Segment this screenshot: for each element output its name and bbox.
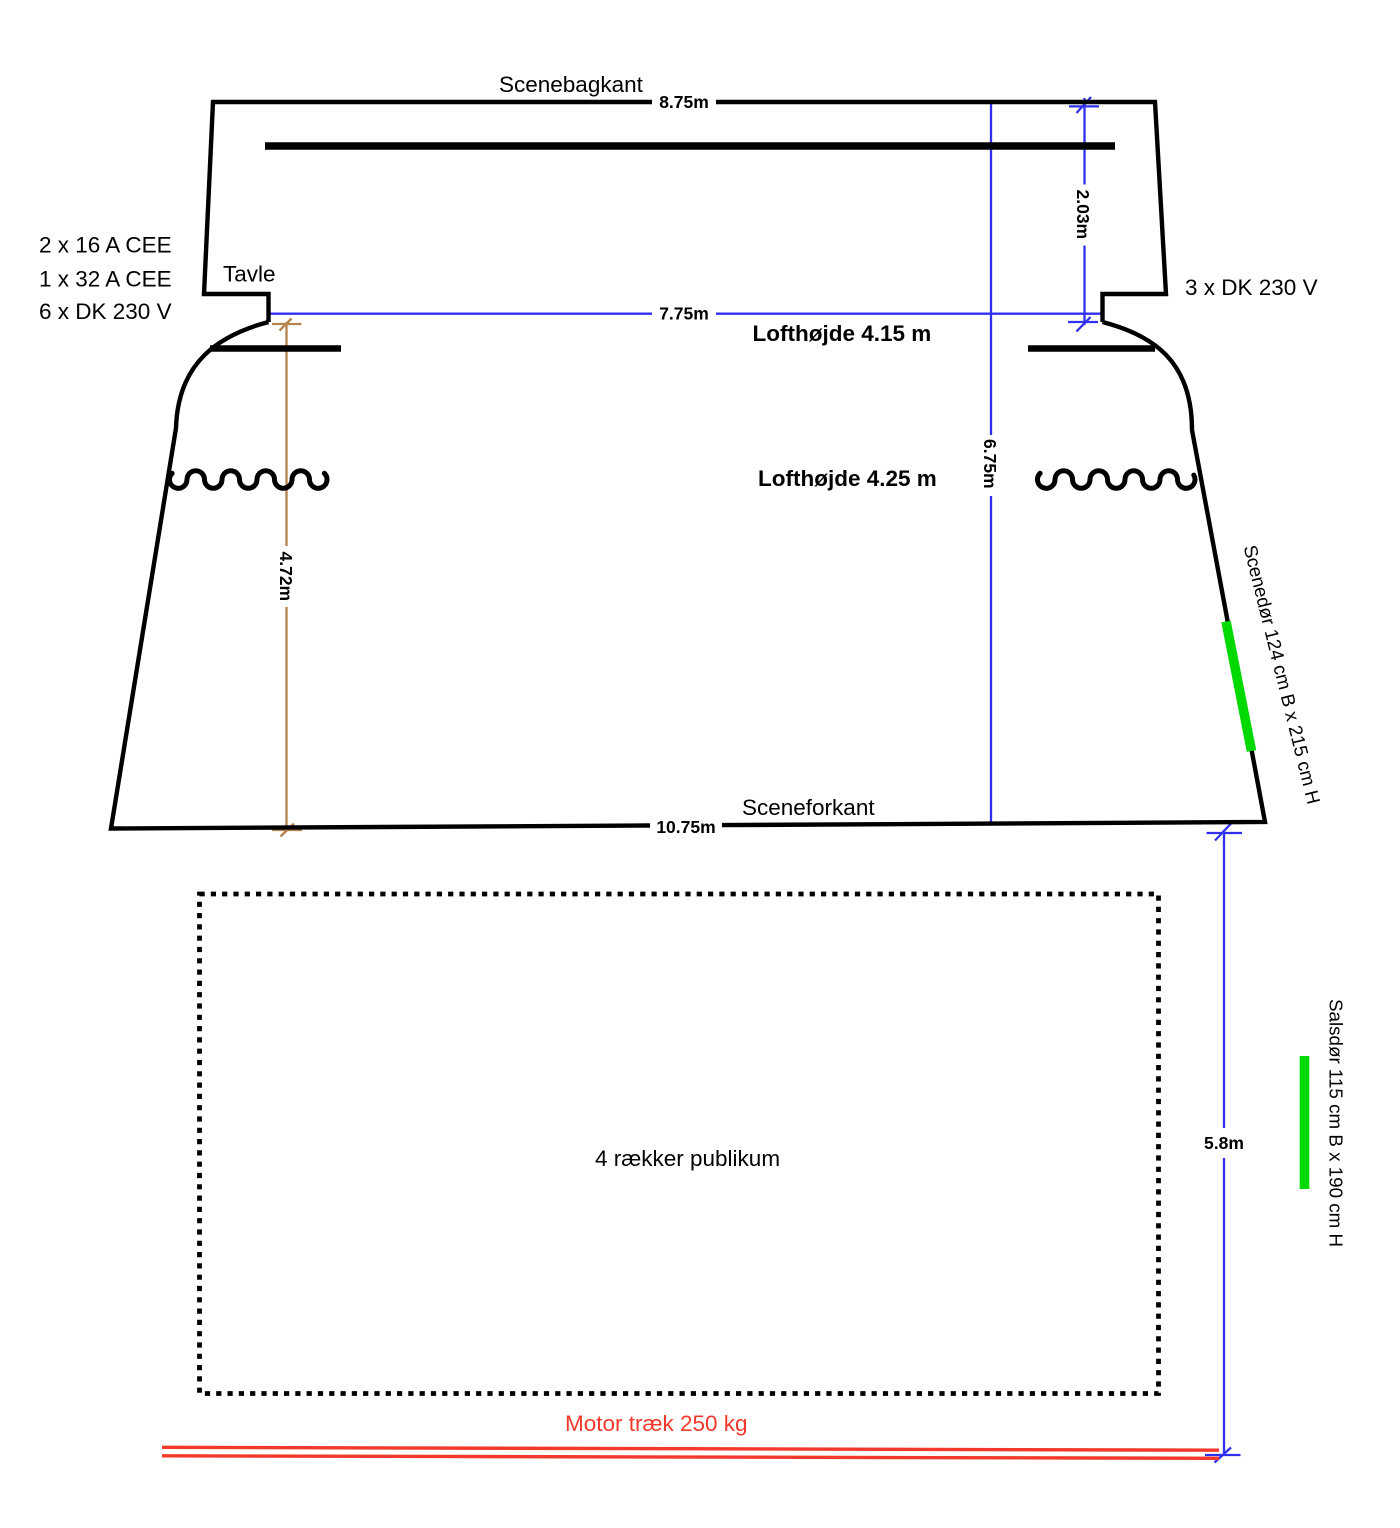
svg-text:Lofthøjde 4.15 m: Lofthøjde 4.15 m — [753, 321, 932, 346]
svg-text:Motor træk 250 kg: Motor træk 250 kg — [565, 1411, 748, 1436]
svg-text:8.75m: 8.75m — [659, 92, 709, 112]
svg-text:3 x DK 230 V: 3 x DK 230 V — [1185, 275, 1318, 300]
svg-text:Tavle: Tavle — [223, 262, 276, 287]
svg-text:Lofthøjde 4.25 m: Lofthøjde 4.25 m — [758, 466, 937, 491]
svg-text:2.03m: 2.03m — [1073, 190, 1093, 240]
svg-text:10.75m: 10.75m — [656, 817, 715, 837]
svg-text:6.75m: 6.75m — [980, 439, 1000, 489]
svg-text:4 rækker publikum: 4 rækker publikum — [595, 1146, 780, 1171]
svg-text:1 x 32 A CEE: 1 x 32 A CEE — [39, 267, 172, 292]
svg-text:5.8m: 5.8m — [1204, 1133, 1244, 1153]
svg-text:Scenebagkant: Scenebagkant — [499, 72, 644, 97]
svg-text:4.72m: 4.72m — [276, 552, 296, 602]
svg-text:Salsdør 115 cm B x 190 cm H: Salsdør 115 cm B x 190 cm H — [1326, 999, 1347, 1247]
svg-text:2 x 16 A CEE: 2 x 16 A CEE — [39, 233, 172, 258]
svg-text:Sceneforkant: Sceneforkant — [742, 795, 875, 820]
svg-text:6 x DK 230 V: 6 x DK 230 V — [39, 299, 172, 324]
svg-text:7.75m: 7.75m — [659, 304, 709, 324]
